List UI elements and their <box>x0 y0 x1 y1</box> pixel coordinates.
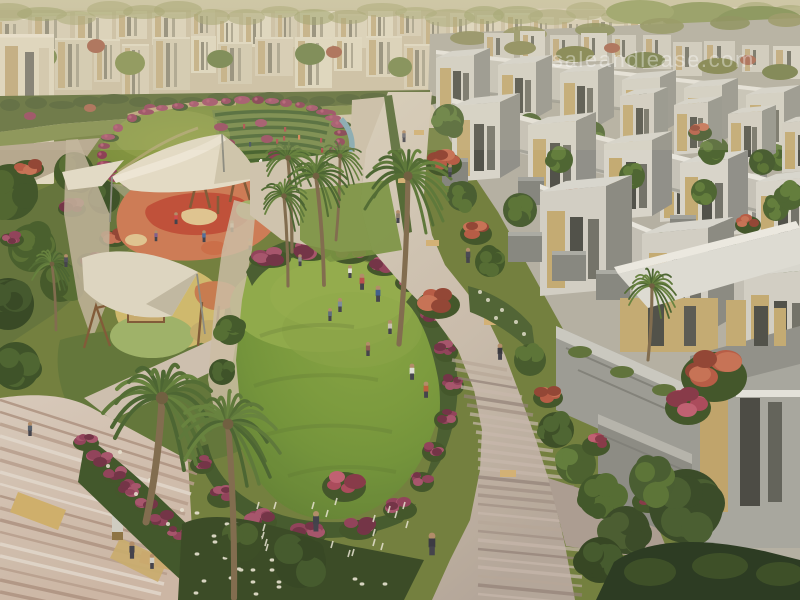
svg-text:saleandlease.com: saleandlease.com <box>552 47 755 72</box>
